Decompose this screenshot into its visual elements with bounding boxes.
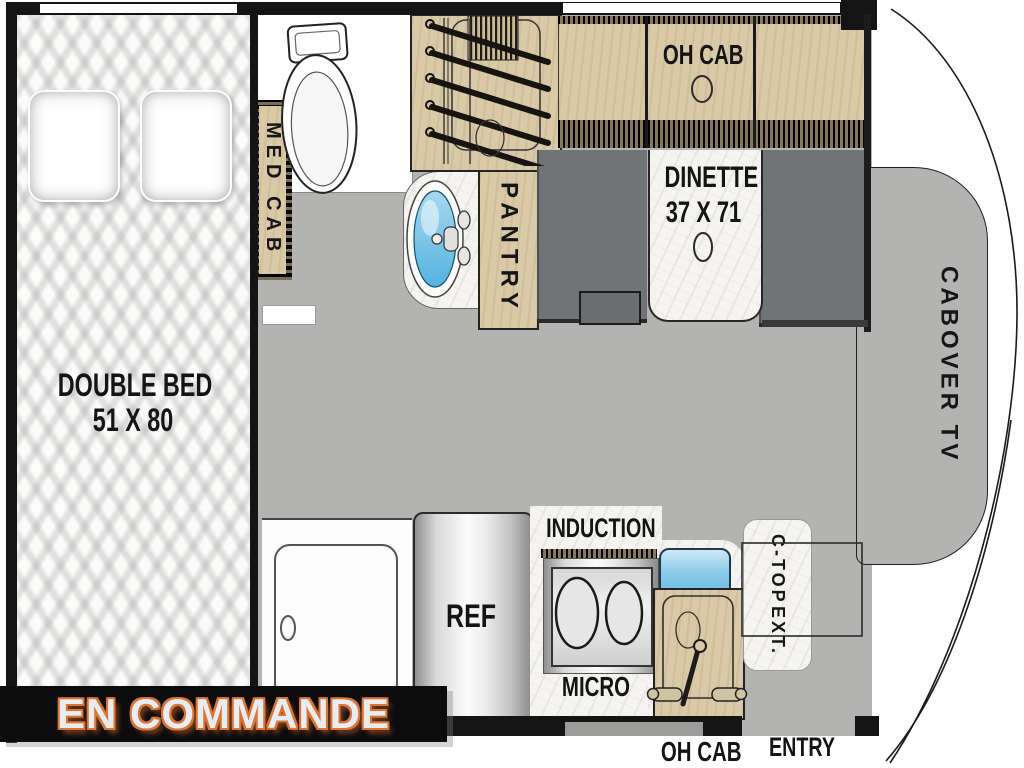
ohcab-top-label: OH CAB [663, 40, 743, 69]
sink-ohcab-label: OH CAB [661, 737, 741, 766]
bench-right-base [762, 320, 868, 327]
entry-label: ENTRY [764, 733, 840, 761]
dinette-label-block: DINETTE 37 X 71 [650, 160, 757, 230]
bath-faucet-knob-1 [458, 211, 470, 229]
ctop-ext-outline [742, 543, 862, 636]
ohcab-knob [692, 76, 712, 102]
kitchen-sink-details [648, 596, 747, 704]
bed-size: 51 X 80 [58, 403, 208, 438]
lower-cabinet-knob [281, 616, 295, 640]
wardrobe-hangers [426, 16, 548, 170]
bed-label: DOUBLE BED [58, 368, 208, 403]
status-banner-text: EN COMMANDE [57, 690, 390, 738]
cooktop-burners [556, 578, 642, 648]
micro-label: MICRO [548, 672, 644, 701]
status-banner: EN COMMANDE [0, 686, 447, 742]
fridge-label: REF [445, 600, 496, 634]
toilet [275, 23, 361, 196]
kitchen-faucet [683, 650, 698, 704]
induction-label: INDUCTION [546, 514, 644, 542]
cabover-tv-label: CABOVER TV [932, 252, 966, 478]
rv-floorplan: MED CAB PANTRY C-TOP EXT. [0, 0, 1024, 768]
bath-faucet-knob-2 [458, 247, 470, 265]
bath-faucet-spout [444, 227, 458, 251]
bathroom-sink [407, 181, 470, 297]
bed-label-block: DOUBLE BED 51 X 80 [30, 368, 236, 438]
dinette-table-knob [694, 233, 712, 261]
dinette-size: 37 X 71 [664, 195, 742, 230]
dinette-label: DINETTE [664, 160, 742, 195]
bench-left-base [580, 292, 640, 324]
